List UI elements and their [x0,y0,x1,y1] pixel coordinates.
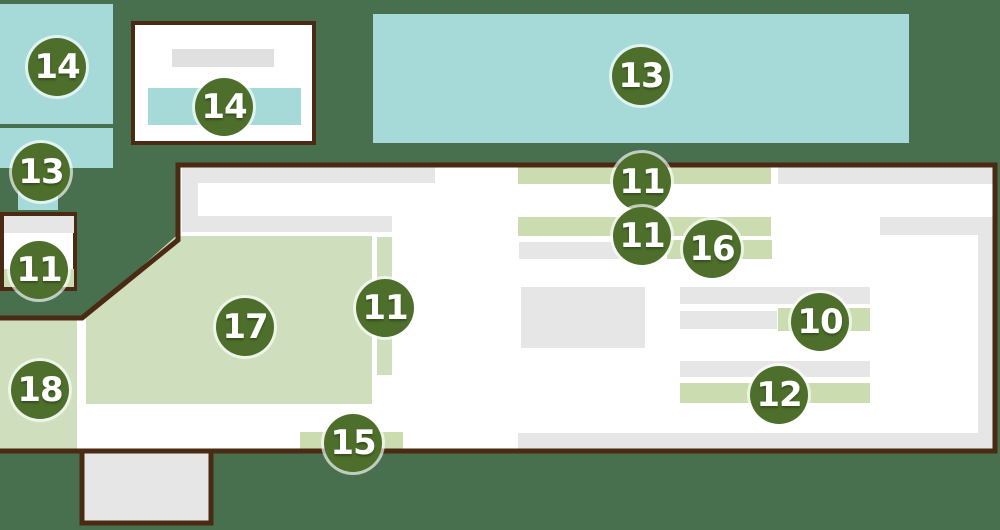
content-gray-bar-2 [680,311,777,329]
marker-14-sidebar: 14 [28,38,86,96]
marker-18: 18 [11,361,69,419]
mockup-card-gray-bar [172,49,274,67]
marker-12: 12 [750,366,808,424]
marker-11-strip: 11 [356,279,414,337]
diagram-shapes [0,0,1000,530]
marker-17: 17 [216,298,274,356]
marker-16: 16 [683,220,741,278]
marker-10: 10 [791,293,849,351]
content-gray-block [521,287,645,348]
header-gray-side [182,183,198,216]
marker-13-sidebar: 13 [12,143,70,201]
gray-bar-row1-right [778,167,994,184]
marker-11-mini-box: 11 [10,241,68,299]
right-gray-strip [978,235,994,433]
marker-13-banner: 13 [612,47,670,105]
left-mini-box-gray-bar [4,216,74,233]
marker-11-row2: 11 [613,207,671,265]
right-gray-bar [880,217,994,235]
footer-gray-bar [518,433,994,450]
bottom-tab [82,451,211,523]
marker-15: 15 [324,414,382,472]
header-gray-bar [182,167,435,183]
wireframe-annotation-diagram: 14 14 13 13 11 11 11 16 17 11 10 12 15 1… [0,0,1000,530]
subheader-gray-bar [182,216,392,232]
marker-14-card: 14 [195,78,253,136]
marker-11-row1: 11 [613,153,671,211]
